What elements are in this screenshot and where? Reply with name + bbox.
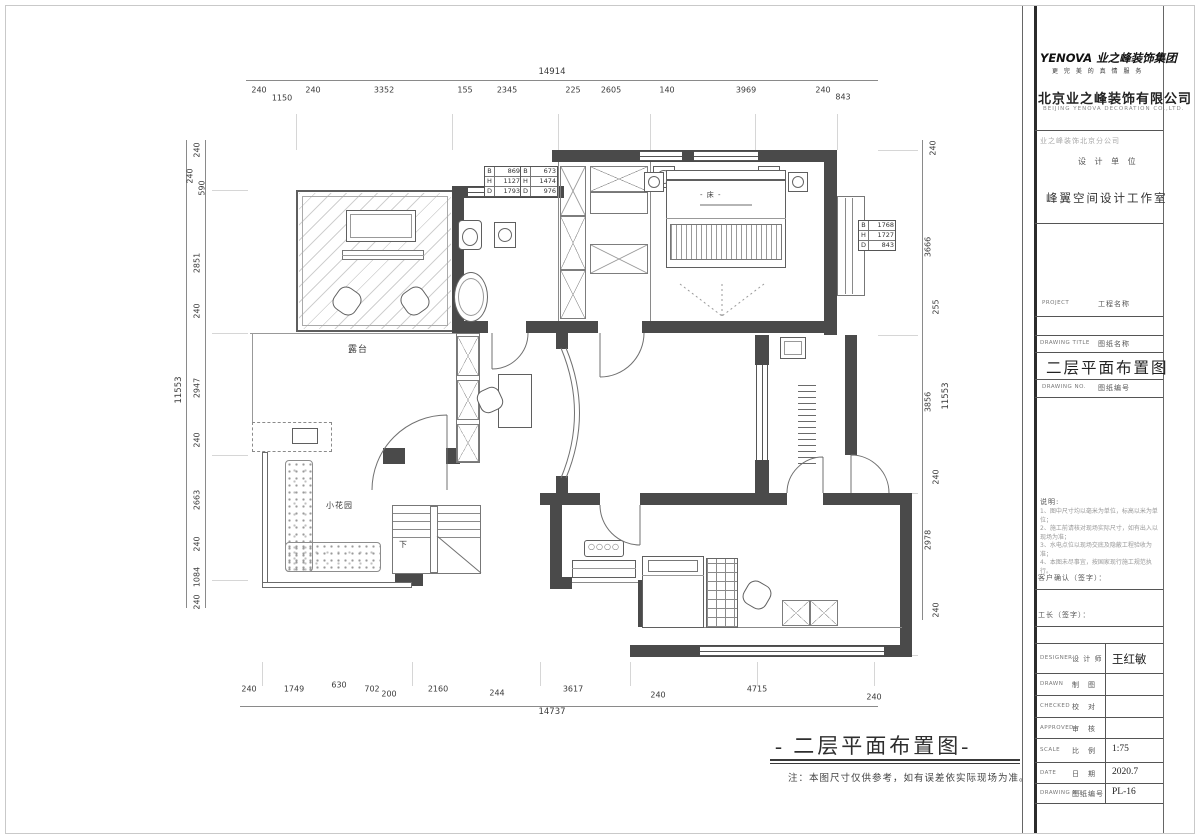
branch-name: 业之峰装饰北京分公司: [1040, 136, 1120, 146]
dim-label: 2160: [428, 685, 448, 694]
dim-label: 240: [932, 602, 941, 617]
tb-row-label-cn: 校 对: [1072, 702, 1096, 712]
dim-label: 240: [193, 142, 202, 157]
plan-tb-line: [1035, 589, 1163, 590]
terrace-label: 露台: [348, 342, 368, 355]
door-arc: [787, 457, 823, 493]
dim-label: 1150: [272, 94, 292, 103]
logo-tagline: 更 完 美 的 真 情 服 务: [1052, 66, 1143, 75]
dim-label: 3856: [924, 392, 933, 412]
dim-label: 702: [364, 685, 379, 694]
dim-label: 2663: [193, 490, 202, 510]
plan-r: H1127: [485, 177, 521, 187]
plan-v: 1474: [531, 177, 557, 186]
titleblock-border-right: [1163, 6, 1164, 833]
plan-tb-line: [1035, 803, 1163, 804]
plan-v: 869: [495, 167, 521, 176]
plan-k: D: [485, 187, 495, 196]
dim-label: 240: [650, 691, 665, 700]
tb-row-label-cn: 图纸编号: [1072, 789, 1104, 799]
plan-v: 1793: [495, 187, 521, 196]
caption-note: 注：本图尺寸仅供参考，如有误差依实际现场为准。: [788, 770, 1030, 784]
dim-label: 240: [241, 685, 256, 694]
dim-label: 240: [815, 86, 830, 95]
div: 3、水电点位以现场交底及隐蔽工程验收为准；: [1040, 542, 1158, 559]
dim-label: 2978: [924, 530, 933, 550]
plan-k: B: [859, 221, 869, 230]
tb-row-value: 2020.7: [1112, 767, 1138, 777]
caption-rule: [770, 759, 1020, 761]
plan-v: 843: [869, 241, 895, 250]
dim-total-left: 11553: [174, 376, 184, 403]
drawing-title: 二层平面布置图: [1046, 356, 1169, 378]
project-label-en: PROJECT: [1042, 300, 1069, 306]
studio-name: 峰翼空间设计工作室: [1046, 190, 1168, 206]
stairs-break-line: [437, 536, 481, 573]
plan-abs: [770, 763, 1020, 764]
plan-r: B1768: [859, 221, 895, 231]
dim-label: 240: [193, 432, 202, 447]
drawing-caption: - 二层平面布置图-: [775, 730, 971, 760]
dim-label: 155: [457, 86, 472, 95]
plan-tb-line: [1035, 695, 1163, 696]
plan-k: B: [521, 167, 531, 176]
subno-label-en: DRAWING NO.: [1042, 384, 1086, 390]
plan-r: D843: [859, 241, 895, 250]
dim-label: 2947: [193, 378, 202, 398]
tb-row-label-cn: 比 例: [1072, 746, 1096, 756]
dim-label: 240: [193, 303, 202, 318]
door-arc: [492, 333, 528, 369]
plan-r: H1727: [859, 231, 895, 241]
plan-k: D: [521, 187, 531, 196]
company-name-en: BEIJING YENOVA DECORATION CO.,LTD.: [1043, 106, 1184, 112]
dim-label: 240: [251, 86, 266, 95]
dim-total-top: 14914: [538, 67, 565, 77]
dim-label: 240: [929, 140, 938, 155]
plan-v: 673: [531, 167, 557, 176]
plan-r: B673: [521, 167, 557, 177]
plan-r: D1793: [485, 187, 521, 196]
dotted-guides: [680, 284, 764, 316]
design-unit-label: 设 计 单 位: [1078, 156, 1139, 167]
g: [680, 284, 764, 316]
window-schedule-tag: B869H1127D1793: [484, 166, 522, 197]
dim-label: 240: [305, 86, 320, 95]
tb-table-column-divider: [1105, 643, 1106, 803]
plan-k: D: [859, 241, 869, 250]
div: 1、图中尺寸均以毫米为单位，标高以米为单位；: [1040, 508, 1158, 525]
dim-label: 590: [198, 180, 207, 195]
plan-tb-line: [1035, 130, 1163, 131]
plan-tb-line: [1035, 352, 1163, 353]
plan-k: H: [521, 177, 531, 186]
div: 2、施工前请核对现场实际尺寸，如有出入以现场为准；: [1040, 525, 1158, 542]
dim-total-bottom: 14737: [538, 707, 565, 717]
plan-r: H1474: [521, 177, 557, 187]
drawing-title-label-cn: 图纸名称: [1098, 339, 1130, 349]
tb-row-label-cn: 制 图: [1072, 680, 1096, 690]
plan-tb-line: [1035, 397, 1163, 398]
plan-tb-line: [1035, 379, 1163, 380]
dim-label: 843: [835, 93, 850, 102]
dim-label: 140: [659, 86, 674, 95]
plan-k: B: [485, 167, 495, 176]
dim-total-right: 11553: [941, 382, 951, 409]
dim-label: 1084: [193, 567, 202, 587]
dim-label: 4715: [747, 685, 767, 694]
tb-row-label-en: DRAWN: [1040, 681, 1063, 687]
plan-k: H: [859, 231, 869, 240]
notes-text: 1、图中尺寸均以毫米为单位，标高以米为单位； 2、施工前请核对现场实际尺寸，如有…: [1040, 508, 1158, 576]
dim-label: 2851: [193, 253, 202, 273]
window-schedule-tag: B1768H1727D843: [858, 220, 896, 251]
door-arc: [851, 455, 889, 493]
dim-label: 3617: [563, 685, 583, 694]
curved-glass-wall: [561, 348, 580, 478]
drawing-title-label-en: DRAWING TITLE: [1040, 340, 1090, 346]
dim-label: 240: [186, 168, 195, 183]
tb-row-value: PL-16: [1112, 787, 1136, 797]
plan-tb-line: [1035, 762, 1163, 763]
door-arc: [372, 415, 447, 490]
tb-row-label-en: APPROVED: [1040, 725, 1074, 731]
dim-label: 3969: [736, 86, 756, 95]
dim-label: 2605: [601, 86, 621, 95]
dim-label: 225: [565, 86, 580, 95]
dim-label: 1749: [284, 685, 304, 694]
g: [372, 333, 889, 573]
window-schedule-tag: B673H1474D976: [520, 166, 558, 197]
dim-label: 244: [489, 689, 504, 698]
dim-label: 240: [193, 536, 202, 551]
tb-row-value: 王红敏: [1112, 651, 1147, 667]
plan-tb-line: [1035, 783, 1163, 784]
plan-tb-line: [1035, 643, 1163, 644]
plan-k: H: [485, 177, 495, 186]
plan-v: 1127: [495, 177, 521, 186]
plan-tb-line: [1035, 673, 1163, 674]
dim-label: 200: [381, 690, 396, 699]
dim-label: 240: [932, 469, 941, 484]
plan-v: 1768: [869, 221, 895, 230]
tb-row-label-cn: 审 核: [1072, 724, 1096, 734]
plan-r: B869: [485, 167, 521, 177]
plan-tb-line: [1035, 316, 1163, 317]
plan-tb-line: [1035, 717, 1163, 718]
foreman-sign-label: 工长（签字）：: [1038, 610, 1091, 620]
company-logo: YENOVA 业之峰装饰集团: [1040, 50, 1177, 66]
plan-linework: [0, 0, 1022, 839]
plan-r: D976: [521, 187, 557, 196]
dim-label: 630: [331, 681, 346, 690]
dim-label: 240: [866, 693, 881, 702]
plan-tb-line: [1035, 335, 1163, 336]
tb-row-label-en: DATE: [1040, 770, 1056, 776]
plan-v: 1727: [869, 231, 895, 240]
tb-row-value: 1:75: [1112, 744, 1129, 754]
subno-label-cn: 图纸编号: [1098, 383, 1130, 393]
floor-plan: - 床 - 小花园 下: [0, 0, 1022, 839]
notes-title: 说明:: [1040, 497, 1059, 507]
company-name: 北京业之峰装饰有限公司: [1038, 88, 1192, 107]
tb-row-label-en: DESIGNER: [1040, 655, 1073, 661]
drawing-sheet: - 床 - 小花园 下: [0, 0, 1200, 839]
door-arc: [600, 333, 644, 377]
plan-tb-line: [1035, 626, 1163, 627]
dim-label: 2345: [497, 86, 517, 95]
titleblock-divider: [1022, 6, 1023, 833]
plan-v: 976: [531, 187, 557, 196]
plan-tb-line: [1035, 738, 1163, 739]
project-label-cn: 工程名称: [1098, 299, 1130, 309]
dim-label: 240: [193, 594, 202, 609]
door-arc: [600, 505, 640, 545]
tb-row-label-cn: 日 期: [1072, 769, 1096, 779]
tb-row-label-en: SCALE: [1040, 747, 1060, 753]
plan-tb-line: [1035, 223, 1163, 224]
dim-label: 3666: [924, 237, 933, 257]
dim-label: 3352: [374, 86, 394, 95]
tb-row-label-en: CHECKED: [1040, 703, 1070, 709]
tb-row-label-cn: 设 计 师: [1072, 654, 1102, 664]
client-confirm-label: 客户确认（签字）：: [1038, 573, 1107, 583]
dim-label: 255: [932, 299, 941, 314]
